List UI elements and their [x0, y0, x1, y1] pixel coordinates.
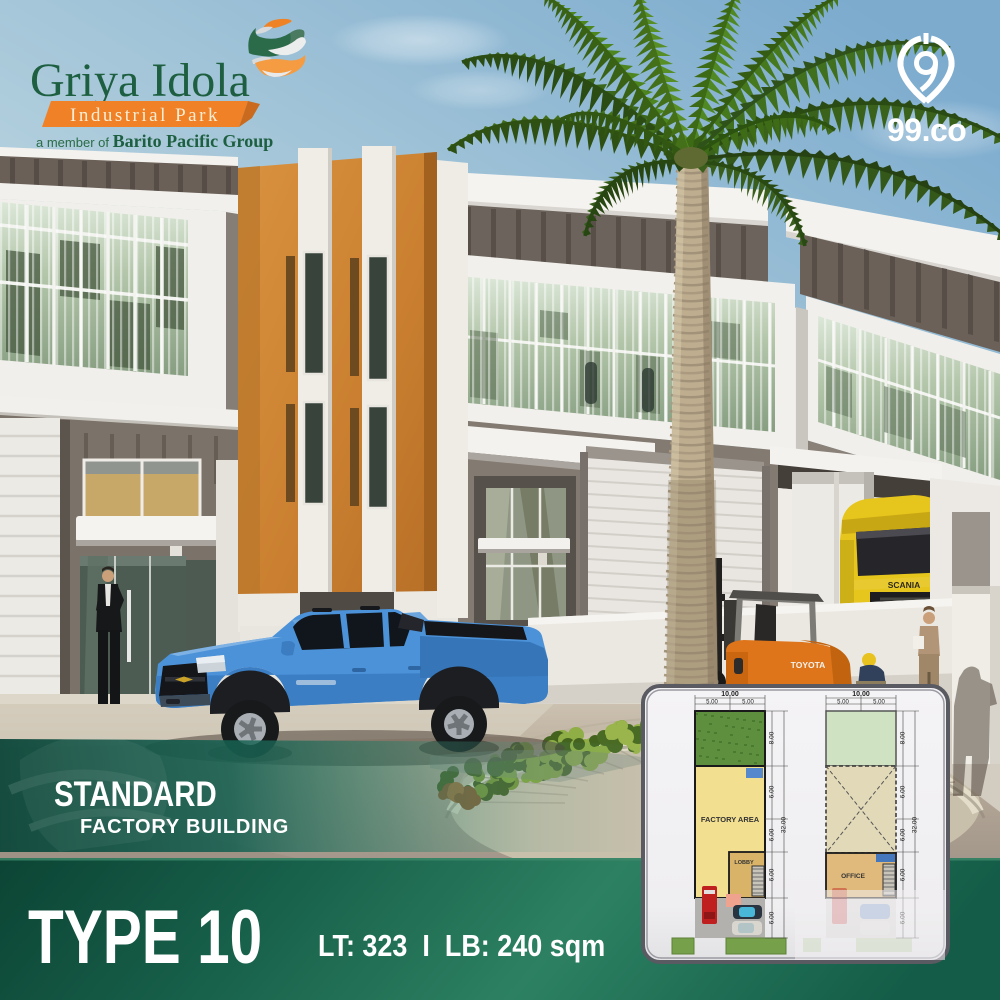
svg-text:6.00: 6.00 [769, 911, 776, 924]
svg-text:6.00: 6.00 [900, 785, 907, 798]
svg-text:8.00: 8.00 [769, 731, 776, 744]
svg-text:10.00: 10.00 [721, 691, 739, 698]
svg-text:FACTORY BUILDING: FACTORY BUILDING [80, 816, 289, 838]
svg-text:6.00: 6.00 [769, 785, 776, 798]
svg-text:Industrial Park: Industrial Park [70, 105, 220, 126]
svg-text:10.00: 10.00 [852, 691, 870, 698]
svg-text:6.00: 6.00 [900, 828, 907, 841]
svg-text:8.00: 8.00 [900, 731, 907, 744]
svg-text:TYPE 10: TYPE 10 [28, 896, 262, 980]
svg-text:LT: 323 I LB: 240 sqm: LT: 323 I LB: 240 sqm [318, 929, 605, 963]
svg-text:6.00: 6.00 [769, 868, 776, 881]
svg-text:TOYOTA: TOYOTA [791, 660, 826, 670]
svg-text:5.00: 5.00 [873, 700, 885, 706]
svg-text:5.00: 5.00 [837, 700, 849, 706]
svg-text:OFFICE: OFFICE [841, 873, 865, 880]
svg-text:5.00: 5.00 [706, 700, 718, 706]
svg-text:Griya Idola: Griya Idola [30, 54, 250, 107]
svg-text:SCANIA: SCANIA [888, 580, 921, 590]
svg-text:6.00: 6.00 [900, 868, 907, 881]
svg-text:5.00: 5.00 [742, 700, 754, 706]
svg-text:32.00: 32.00 [781, 816, 788, 833]
svg-text:6.00: 6.00 [769, 828, 776, 841]
svg-text:STANDARD: STANDARD [54, 775, 217, 814]
svg-text:99.co: 99.co [887, 112, 966, 148]
svg-text:LOBBY: LOBBY [734, 860, 754, 866]
svg-text:FACTORY AREA: FACTORY AREA [701, 815, 760, 824]
svg-text:32.00: 32.00 [912, 816, 919, 833]
